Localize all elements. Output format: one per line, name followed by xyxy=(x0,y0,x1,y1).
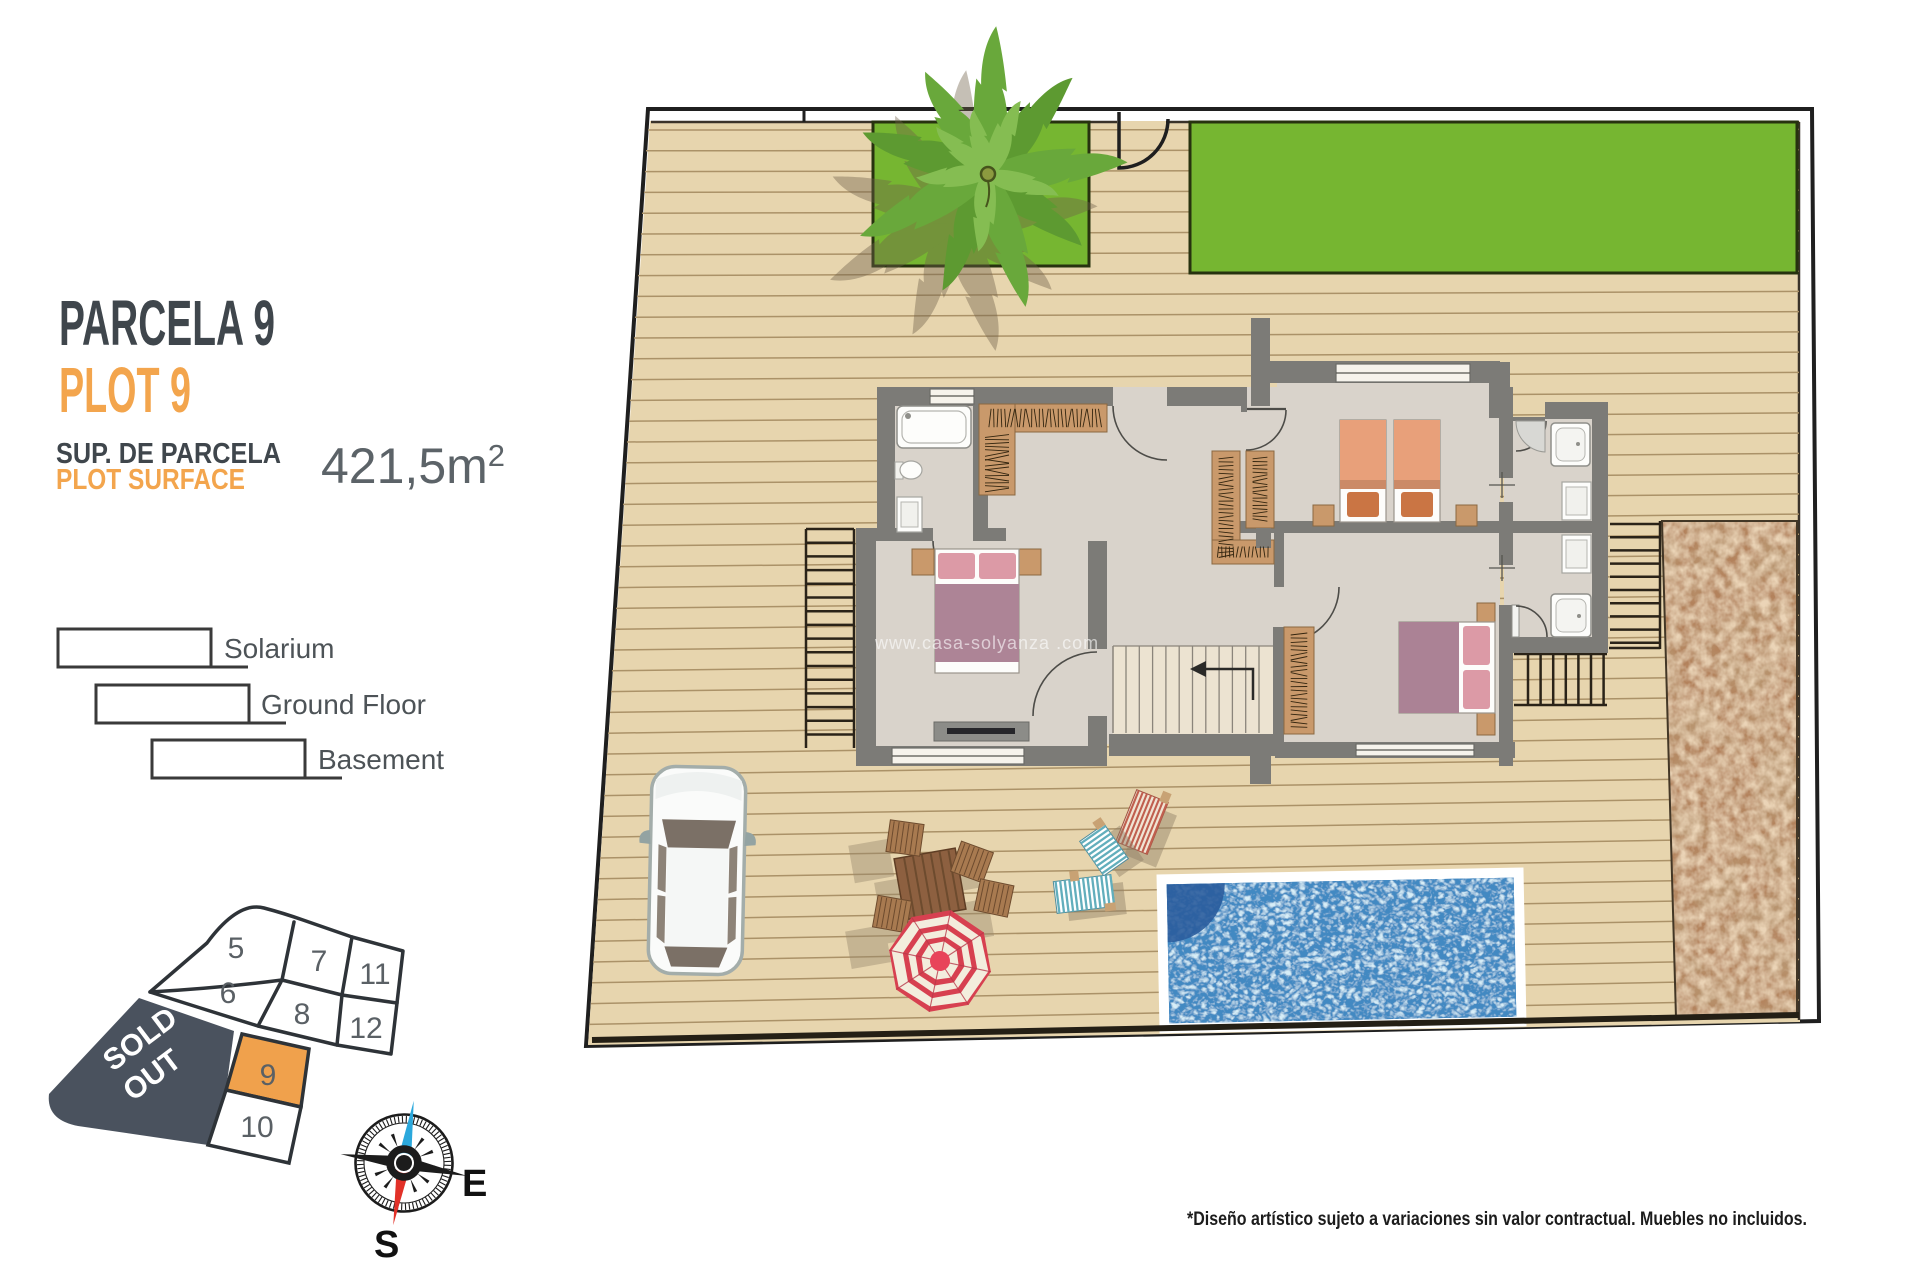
svg-text:421,5m2: 421,5m2 xyxy=(321,438,505,494)
svg-text:7: 7 xyxy=(311,945,328,978)
svg-text:Solarium: Solarium xyxy=(224,633,334,664)
svg-text:11: 11 xyxy=(359,958,390,991)
svg-text:5: 5 xyxy=(228,932,245,965)
svg-text:Basement: Basement xyxy=(318,744,444,775)
svg-text:*Diseño artístico sujeto a var: *Diseño artístico sujeto a variaciones s… xyxy=(1187,1209,1807,1230)
svg-text:PLOT 9: PLOT 9 xyxy=(59,354,191,426)
svg-text:8: 8 xyxy=(294,998,311,1031)
svg-text:Ground Floor: Ground Floor xyxy=(261,689,426,720)
svg-text:10: 10 xyxy=(240,1111,273,1144)
svg-text:PARCELA 9: PARCELA 9 xyxy=(59,287,275,359)
svg-text:E: E xyxy=(462,1163,487,1205)
svg-text:PLOT SURFACE: PLOT SURFACE xyxy=(56,464,245,496)
svg-text:12: 12 xyxy=(349,1012,382,1045)
svg-text:9: 9 xyxy=(260,1059,277,1092)
svg-text:S: S xyxy=(374,1224,399,1266)
svg-text:6: 6 xyxy=(220,977,237,1010)
svg-text:www.casa-solyanza .com: www.casa-solyanza .com xyxy=(874,633,1099,653)
